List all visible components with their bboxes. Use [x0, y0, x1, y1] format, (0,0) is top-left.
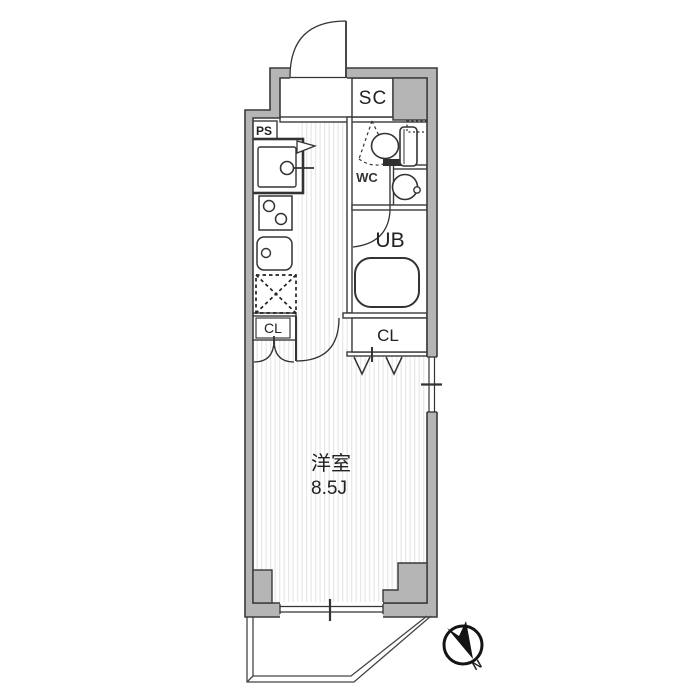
room-wall-right [343, 313, 427, 318]
window-bottom [280, 599, 383, 621]
unit-bath-label: UB [375, 229, 404, 252]
entry-floor [280, 78, 352, 118]
toilet-icon [372, 127, 418, 166]
shoe-closet-label: SC [359, 88, 387, 109]
wall-block-top-right [393, 78, 427, 120]
basin-icon [393, 175, 421, 200]
washer-space-icon [257, 237, 292, 270]
hallway-floor [298, 122, 347, 318]
bathtub-icon [355, 258, 419, 307]
floor-plan-drawing: N SC PS WC UB CL CL 洋室 8.5J [0, 0, 700, 700]
pipe-space-label: PS [256, 124, 272, 138]
closet-right-label: CL [377, 326, 399, 345]
toilet-label: WC [356, 170, 378, 185]
entrance-door [290, 21, 347, 80]
bathroom-fixtures [353, 205, 419, 307]
compass-icon: N [444, 621, 484, 673]
wc-fixtures [359, 121, 428, 200]
closet-left-label: CL [264, 320, 282, 336]
hall-wc-wall [347, 117, 352, 313]
main-room-size: 8.5J [311, 478, 347, 499]
balcony [247, 616, 431, 682]
main-room-name: 洋室 [311, 452, 351, 475]
pillar-bottom-left [253, 570, 272, 603]
floor-plan-page: N SC PS WC UB CL CL 洋室 8.5J [0, 0, 700, 700]
stove-icon [259, 196, 292, 230]
compass-north-label: N [470, 657, 485, 673]
